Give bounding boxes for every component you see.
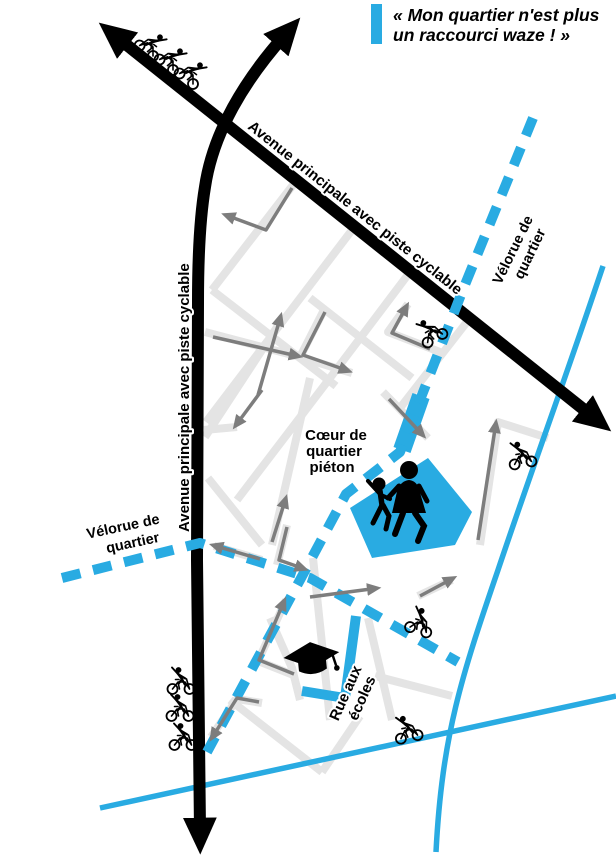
school-street-label: Rue aux écoles — [326, 662, 381, 730]
quote-line1: « Mon quartier n'est plus — [393, 5, 600, 25]
map-canvas: Avenue principale avec piste cyclable Av… — [0, 0, 616, 862]
avenue-vertical-label-text: Avenue principale avec piste cyclable — [176, 263, 193, 532]
bicycle-icon — [404, 605, 438, 639]
street-segment — [322, 716, 360, 772]
pedestrian-heart-line3: piéton — [310, 459, 355, 476]
pedestrian-heart-line2: quartier — [306, 443, 362, 460]
velorue-top-right-label: Vélorue de quartier — [490, 213, 552, 294]
quote-block: « Mon quartier n'est plus un raccourci w… — [371, 4, 600, 45]
one-way-arrow — [239, 390, 262, 421]
bicycle-icon — [167, 694, 194, 721]
bicycle-icon — [168, 667, 195, 694]
quote-line2: un raccourci waze ! » — [393, 25, 570, 45]
avenue-vertical-label: Avenue principale avec piste cyclable — [176, 263, 193, 532]
bicycle-icon — [170, 723, 197, 750]
velorue-left-label: Vélorue de quartier — [85, 512, 165, 561]
street-segment — [212, 185, 293, 290]
street-segment — [300, 308, 325, 357]
velorue-cross — [62, 543, 458, 662]
one-way-arrow — [420, 581, 448, 596]
neighborhood-traffic-plan-diagram: Avenue principale avec piste cyclable Av… — [0, 0, 616, 862]
street-segment — [208, 478, 262, 545]
quote-accent-bar — [371, 4, 382, 44]
bicycle-icon — [506, 439, 537, 470]
street-segment — [204, 427, 237, 430]
pedestrian-heart-label: Cœur de quartier piéton — [305, 427, 367, 476]
street-segment — [368, 618, 392, 720]
pedestrian-heart-line1: Cœur de — [305, 427, 367, 444]
